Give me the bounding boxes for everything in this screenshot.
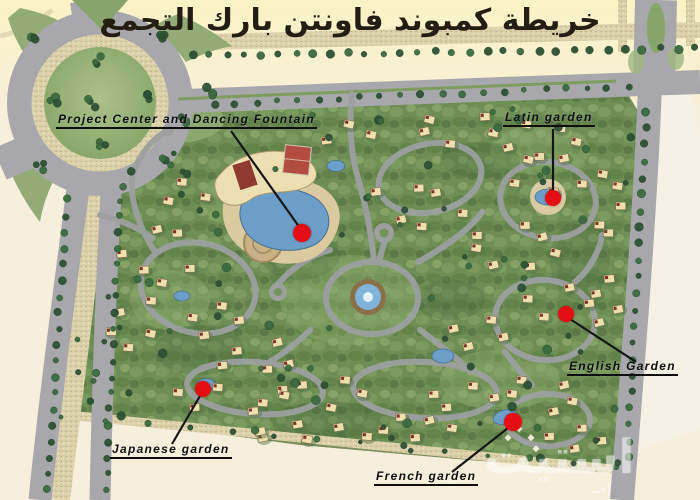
marker-dot-japanese-garden xyxy=(195,381,211,397)
map-label-project-center: Project Center and Dancing Fountain xyxy=(56,112,317,129)
marker-dot-project-center xyxy=(293,224,311,242)
marker-dot-english-garden xyxy=(558,306,574,322)
map-label-latin-garden: Latin garden xyxy=(503,110,595,127)
compound-map-page: خريطة كمبوند فاونتن بارك التجمع Project … xyxy=(0,0,700,500)
page-title: خريطة كمبوند فاونتن بارك التجمع xyxy=(0,3,700,38)
marker-dot-latin-garden xyxy=(545,190,561,206)
tennis-court xyxy=(283,145,312,176)
site-map xyxy=(0,0,700,500)
watermark-subtext: إخـ xyxy=(592,481,612,497)
marker-dot-french-garden xyxy=(504,413,522,431)
watermark-text: استيت xyxy=(484,430,634,485)
map-label-japanese-garden: Japanese garden xyxy=(110,442,232,459)
map-label-english-garden: English Garden xyxy=(567,359,678,376)
map-label-french-garden: French garden xyxy=(374,469,478,486)
